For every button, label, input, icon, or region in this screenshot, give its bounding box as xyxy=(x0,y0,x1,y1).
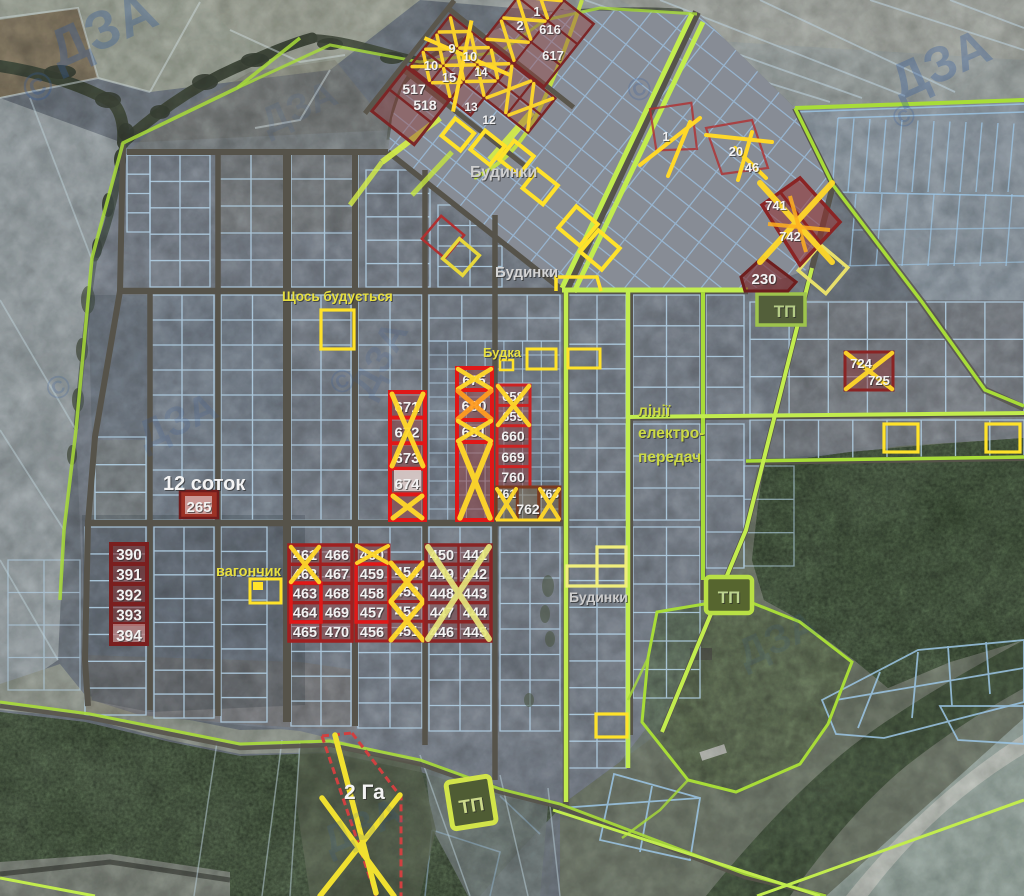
svg-text:741: 741 xyxy=(765,198,787,213)
svg-text:470: 470 xyxy=(325,625,349,641)
svg-text:10: 10 xyxy=(463,49,477,64)
svg-text:390: 390 xyxy=(116,547,142,564)
svg-text:ТП: ТП xyxy=(718,588,741,607)
svg-text:391: 391 xyxy=(116,567,142,584)
svg-text:20: 20 xyxy=(729,144,743,159)
svg-text:456: 456 xyxy=(360,625,384,641)
svg-text:передач: передач xyxy=(638,449,701,466)
svg-text:394: 394 xyxy=(116,628,142,645)
svg-text:9: 9 xyxy=(448,41,455,56)
svg-text:Будинки: Будинки xyxy=(569,589,628,605)
svg-text:ТП: ТП xyxy=(774,302,797,321)
svg-text:459: 459 xyxy=(360,567,384,583)
svg-text:392: 392 xyxy=(116,587,142,604)
svg-text:762: 762 xyxy=(516,501,540,517)
svg-text:463: 463 xyxy=(293,586,317,602)
svg-text:Будка: Будка xyxy=(483,345,522,360)
svg-text:468: 468 xyxy=(325,586,349,602)
svg-text:15: 15 xyxy=(442,70,456,85)
svg-text:669: 669 xyxy=(501,449,525,465)
svg-text:393: 393 xyxy=(116,608,142,625)
svg-text:10: 10 xyxy=(424,58,438,73)
svg-text:760: 760 xyxy=(501,469,525,485)
svg-text:674: 674 xyxy=(394,476,420,493)
svg-text:13: 13 xyxy=(464,100,478,114)
svg-text:458: 458 xyxy=(360,586,384,602)
svg-text:518: 518 xyxy=(413,97,437,113)
svg-text:Щось будується: Щось будується xyxy=(282,289,393,304)
svg-text:12: 12 xyxy=(482,113,496,127)
svg-text:14: 14 xyxy=(474,65,488,79)
svg-text:724: 724 xyxy=(850,356,872,371)
svg-text:616: 616 xyxy=(539,22,561,37)
svg-text:742: 742 xyxy=(779,229,801,244)
svg-text:467: 467 xyxy=(325,567,349,583)
svg-text:46: 46 xyxy=(745,160,759,175)
svg-text:725: 725 xyxy=(868,373,890,388)
svg-text:457: 457 xyxy=(360,606,384,622)
svg-text:електро-: електро- xyxy=(638,425,704,442)
svg-text:466: 466 xyxy=(325,548,349,564)
svg-text:517: 517 xyxy=(402,81,426,97)
svg-text:469: 469 xyxy=(325,606,349,622)
svg-text:лінії: лінії xyxy=(638,403,671,420)
svg-text:1: 1 xyxy=(533,4,540,19)
svg-text:230: 230 xyxy=(751,271,776,288)
svg-text:вагончик: вагончик xyxy=(216,564,282,580)
svg-text:Будинки: Будинки xyxy=(470,164,537,181)
svg-text:12 соток: 12 соток xyxy=(163,473,246,495)
svg-text:ТП: ТП xyxy=(458,794,486,819)
svg-text:464: 464 xyxy=(293,606,317,622)
svg-text:617: 617 xyxy=(542,48,564,63)
svg-text:Будинки: Будинки xyxy=(495,264,558,281)
svg-text:2: 2 xyxy=(516,18,523,33)
svg-text:1: 1 xyxy=(662,129,669,144)
svg-text:265: 265 xyxy=(186,499,211,516)
svg-text:660: 660 xyxy=(501,428,525,444)
svg-text:465: 465 xyxy=(293,625,317,641)
